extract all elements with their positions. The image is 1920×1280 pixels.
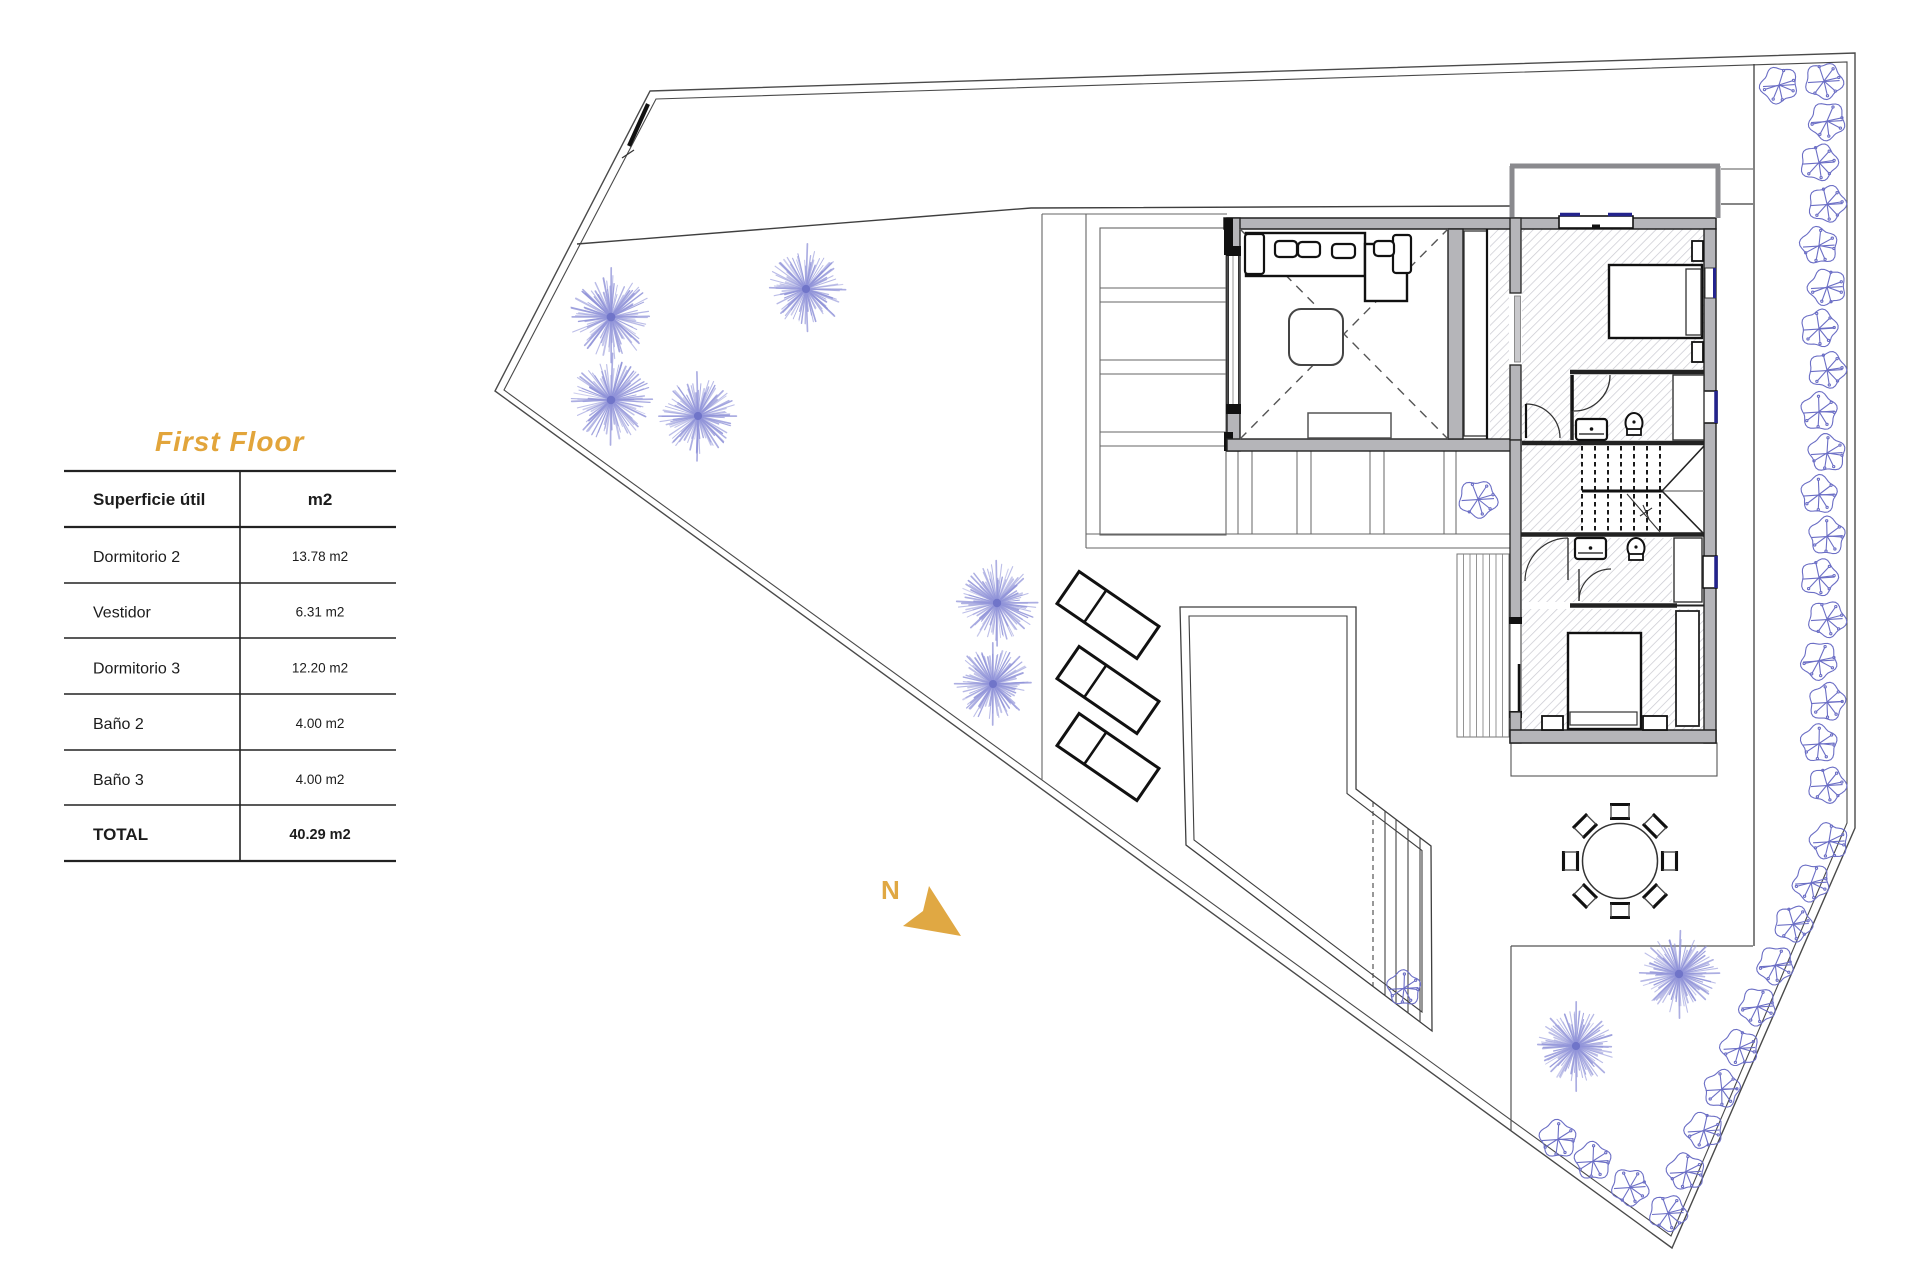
svg-text:12.20 m2: 12.20 m2 [292,660,348,675]
svg-text:Dormitorio 2: Dormitorio 2 [93,549,180,566]
svg-text:TOTAL: TOTAL [93,825,148,844]
svg-text:Baño 2: Baño 2 [93,716,144,733]
svg-text:Vestidor: Vestidor [93,605,151,622]
svg-text:N: N [881,875,900,905]
svg-text:Dormitorio 3: Dormitorio 3 [93,660,180,677]
svg-text:Superficie útil: Superficie útil [93,490,205,509]
svg-text:4.00 m2: 4.00 m2 [296,772,345,787]
svg-text:4.00 m2: 4.00 m2 [296,716,345,731]
svg-text:40.29 m2: 40.29 m2 [289,827,350,843]
svg-text:13.78 m2: 13.78 m2 [292,549,348,564]
svg-text:6.31 m2: 6.31 m2 [296,605,345,620]
svg-text:m2: m2 [308,490,333,509]
svg-text:First Floor: First Floor [155,426,306,457]
svg-text:Baño 3: Baño 3 [93,772,144,789]
